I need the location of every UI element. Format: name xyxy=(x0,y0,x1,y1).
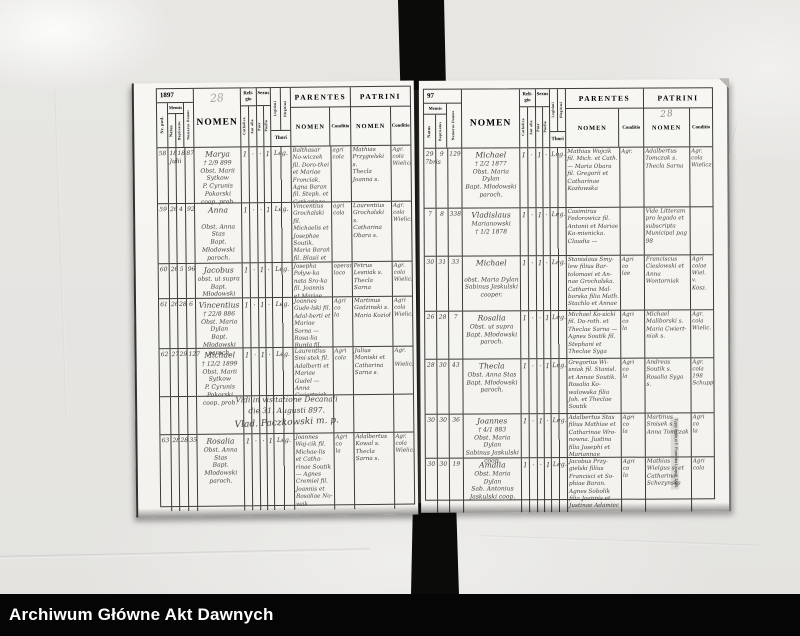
header-thori: Legitimi Illegitimi Thori xyxy=(271,88,292,146)
religio-label: Reli- gio xyxy=(241,88,256,106)
aut-alia-label: Aut alia xyxy=(251,119,255,134)
note-spacer-row xyxy=(160,395,413,436)
cell-thori: Leg. xyxy=(552,458,568,512)
puella-label: Puella xyxy=(544,121,548,132)
patrini-conditio-label: Conditio xyxy=(391,107,410,145)
cell-par-nomen: Casimirus Fedorowicz fil. Antonii et Mar… xyxy=(567,208,621,255)
cell-par-nomen: Adalbertus Stas filius Mathiae et Cathar… xyxy=(568,414,622,457)
cell-nr: 58 xyxy=(157,148,169,203)
header-numerus-domus: Numerus Domus xyxy=(184,103,193,147)
legitimi-label: Legitimi xyxy=(273,101,277,116)
header-natus: Natus xyxy=(168,114,177,147)
cell-par-cond: Agr. xyxy=(620,148,644,207)
cell-cath: 1 xyxy=(522,414,530,457)
cell-nomen: Marya † 2/9 899 Obst. Marii Sytkow P. Cy… xyxy=(194,147,242,202)
nomen-label: NOMEN xyxy=(196,117,238,127)
cell-par-nomen: Stanislaus Smy-lew filius Bar-tolomaei e… xyxy=(567,256,621,310)
left-table-header: 1897 Nr. potł. Mensis Natus Baptisatus N… xyxy=(157,87,411,149)
cell-pat-cond: Agri co la xyxy=(692,413,714,456)
register-row: 78338Vladislaus Marianowski † 1/2 18781·… xyxy=(425,207,713,257)
header-thori: Legitimi Illegitimi Thori xyxy=(550,89,566,147)
cell-par-cond: agri cola xyxy=(331,146,352,201)
cell-par-nomen: Joannes Woj-cik fil. Michae-lis et Catha… xyxy=(294,433,335,509)
register-row: 6026596Jacobus obst. ut supra Bapt. Młod… xyxy=(159,262,412,300)
cell-nomen: Thecla Obst. Anna Stas Bapt. Młodowski p… xyxy=(463,359,521,413)
cell-natus: 7 xyxy=(425,209,437,256)
cell-par-nomen: Josepha Poływ-ka nata Sro-ka fil. Joanni… xyxy=(293,262,333,296)
cell-pat-cond: Agr. cola Wielicz. xyxy=(392,202,412,261)
cell-pat-nomen: Adalbertus Kowal s. Thecla Sarna s. xyxy=(354,433,395,509)
patrini-label: PATRINI xyxy=(351,87,410,108)
parentes-nomen-label: NOMEN xyxy=(291,107,331,145)
register-row: 622729127Michael † 12/2 1899 Obst. Marii… xyxy=(160,347,413,398)
cell-bapt: 9 xyxy=(436,149,448,208)
header-sexus: Sexus Puer Puella xyxy=(257,88,272,146)
header-patrini: PATRINI 28 NOMEN Conditio xyxy=(644,88,712,146)
cell-par-cond: Agri co la xyxy=(622,414,646,457)
cell-pat-cond: Agr. cola Wielicz. xyxy=(394,433,414,509)
cell-pat-cond: Agr. cola Wielicka xyxy=(391,146,411,201)
cell-domus: 36 xyxy=(450,415,464,458)
header-legitimi: Legitimi xyxy=(271,88,281,130)
header-group-dates: 1897 Nr. potł. Mensis Natus Baptisatus N… xyxy=(157,89,195,147)
cell-thori: Leg. xyxy=(551,359,567,413)
cell-bapt: 28 xyxy=(437,312,449,359)
cell-pat-nomen: Martinus Smisek s. Anna Tomczak xyxy=(646,413,692,456)
cell-nomen: Michael obst. Maria Dylan Sabinus Jaskul… xyxy=(463,256,521,310)
cell-par-nomen: Laurentius Smi-stek fil. Adalberti et Ma… xyxy=(294,347,334,394)
cell-thori: Leg. xyxy=(552,414,568,457)
mensis-label: Mensis xyxy=(424,104,446,115)
patrini-nomen-label: NOMEN xyxy=(351,107,391,145)
page-corner-fold xyxy=(719,78,729,88)
cell-bapt: 29 xyxy=(179,349,188,396)
register-row: 6126286Vincentius † 22/8 886 Obst. Maria… xyxy=(159,297,413,350)
right-page: 97 Mensis Natus Baptisatus Numerus Domus xyxy=(419,79,731,513)
cell-pat-nomen: Laurentius Grochalski s. Catharina Obara… xyxy=(352,202,393,261)
cell-pat-nomen: Vide Litteram pro legado et subscripta M… xyxy=(645,207,691,254)
cell-pat-cond: Agr. cola 198 Schupp. xyxy=(691,358,713,412)
cell-pat-nomen: Andreas Soutik s. Rosalia Syga s. xyxy=(645,358,691,412)
cell-par-nomen: Vincentius Grochalski fil. Michaelis et … xyxy=(292,202,333,261)
cell-par-nomen: Mathias Wojcik fil. Mich. et Cath. — Mar… xyxy=(566,148,620,207)
cell-domus: 129 xyxy=(448,149,462,208)
book-spine-top xyxy=(397,0,446,90)
cell-aut: · xyxy=(529,359,537,413)
cell-bapt: 5 xyxy=(178,264,187,298)
natus-label: Natus xyxy=(427,125,432,137)
header-patrini: PATRINI NOMEN Conditio xyxy=(351,87,411,146)
cell-thori: Leg. xyxy=(274,348,294,395)
cell-nomen: Vincentius † 22/8 886 Obst. Maria Dylan … xyxy=(196,298,244,347)
sexus-label: Sexus xyxy=(536,89,549,107)
cell-pat-nomen: Adalbertus Tomczak s. Thecla Sarna xyxy=(644,147,690,206)
cell-par-cond: Agri co la xyxy=(333,297,354,346)
cell-aut: · xyxy=(529,208,537,255)
cell-par-nomen xyxy=(294,395,334,432)
thori-label: Thori xyxy=(271,130,290,146)
header-natus: Natus xyxy=(424,115,436,148)
nr-label: Nr. potł. xyxy=(160,116,165,133)
nomen-label: NOMEN xyxy=(470,118,511,128)
header-parentes: PARENTES NOMEN Conditio xyxy=(291,87,352,146)
cell-par-cond: Agri co la xyxy=(621,311,645,358)
cell-pat-nomen: Martinus Gadzinski s. Maria Kozioł xyxy=(353,297,394,346)
parentes-nomen-label: NOMEN xyxy=(566,109,620,147)
header-religio: Reli- gio Catholica Aut alia xyxy=(241,88,258,146)
sexus-label: Sexus xyxy=(257,88,270,106)
cell-cath: 1 xyxy=(522,458,530,512)
header-group-dates: 97 Mensis Natus Baptisatus Numerus Domus xyxy=(424,90,462,148)
cell-pat-nomen: Michael Maliborski s. Maria Cwiert-niak … xyxy=(645,310,691,357)
parentes-conditio-label: Conditio xyxy=(330,107,350,145)
cell-nr xyxy=(160,397,171,434)
cell-thori: Leg. xyxy=(272,203,293,262)
header-mensis: Mensis Natus Baptisatus xyxy=(424,104,448,148)
cell-domus: 19 xyxy=(450,459,464,513)
year-label: 1897 xyxy=(157,89,193,103)
cell-nomen: Anna Obst. Anna Stas Bapt. Młodowski par… xyxy=(195,203,243,262)
cell-natus: 29 7bris xyxy=(424,149,436,208)
header-religio: Reli- gio Catholica Aut alia xyxy=(520,89,536,147)
baptisatus-label: Baptisatus xyxy=(439,122,443,141)
cell-natus: 30 xyxy=(426,415,438,458)
cell-nomen: Rosalia Obst. Anna Stas Bapt. Młodowski … xyxy=(197,434,245,511)
puella-label: Puella xyxy=(265,120,269,131)
cell-aut: · xyxy=(529,311,537,358)
catholica-label: Catholica xyxy=(243,118,247,136)
archive-name: Archiwum Główne Akt Dawnych xyxy=(9,605,274,625)
cell-par-cond: Agri co la xyxy=(334,433,355,509)
cell-par-nomen: Joannes Gude-lski fil. Adal-berti et Mar… xyxy=(293,297,334,346)
cell-nr: 62 xyxy=(160,349,171,396)
cell-nomen: Michael † 2/2 1877 Obst. Maria Dylan Bap… xyxy=(462,148,520,207)
cell-domus xyxy=(188,397,197,434)
patrini-conditio-label: Conditio xyxy=(690,108,712,146)
cell-aut: · xyxy=(530,414,538,457)
parentes-conditio-label: Conditio xyxy=(619,109,643,147)
register-row: 303133Michael obst. Maria Dylan Sabinus … xyxy=(425,255,713,312)
natus-label: Natus xyxy=(169,125,174,137)
cell-nomen xyxy=(197,396,244,433)
header-aut-alia: Aut alia xyxy=(528,107,535,147)
cell-domus: 338 xyxy=(449,209,463,256)
cell-thori xyxy=(274,396,294,433)
book-spine-bottom xyxy=(411,503,459,595)
cell-bapt: 30 xyxy=(438,415,450,458)
header-illegitimi: Illegitimi xyxy=(558,89,565,131)
register-row: 283043Thecla Obst. Anna Stas Bapt. Młodo… xyxy=(425,358,713,415)
cell-bapt: 30 xyxy=(437,360,449,414)
header-nomen: NOMEN xyxy=(462,89,520,147)
cell-nomen: Rosalia Obst. ut supra Bapt. Młodowski p… xyxy=(463,311,521,358)
cell-thori: Leg. xyxy=(551,256,567,310)
cell-pat-nomen: Julius Moniski et Catharina Sarna s. xyxy=(354,347,394,394)
cell-cath: 1 xyxy=(521,311,529,358)
header-catholica: Catholica xyxy=(520,107,528,147)
year-label: 97 xyxy=(424,90,461,104)
cell-domus: 96 xyxy=(187,264,196,298)
cell-pat-nomen: Franciscus Cieslowski et Anna Wontorniak xyxy=(645,255,691,309)
paper-crease xyxy=(480,535,760,547)
catholica-label: Catholica xyxy=(522,119,526,137)
header-sexus: Sexus Puer Puella xyxy=(536,89,550,147)
header-nomen: 28 NOMEN xyxy=(194,88,242,146)
patrini-label: PATRINI xyxy=(644,88,712,108)
cell-par-cond xyxy=(621,208,645,255)
cell-pat-cond: Agri colae Wiel. v. Kosz. xyxy=(691,255,713,309)
scanned-register-photo: 1897 Nr. potł. Mensis Natus Baptisatus N… xyxy=(0,0,800,636)
baptisatus-label: Baptisatus xyxy=(178,121,182,140)
cell-par-cond: operaria loco xyxy=(333,262,353,296)
cell-domus: 33 xyxy=(449,257,463,311)
header-illegitimi: Illegitimi xyxy=(281,88,290,130)
header-baptisatus: Baptisatus xyxy=(176,114,184,147)
cell-cath: 1 xyxy=(521,256,529,310)
header-nr: Nr. potł. xyxy=(157,103,168,147)
right-table-header: 97 Mensis Natus Baptisatus Numerus Domus xyxy=(424,88,712,149)
header-mensis: Mensis Natus Baptisatus xyxy=(168,103,185,147)
mensis-label: Mensis xyxy=(168,103,184,114)
cell-par-cond xyxy=(334,395,354,432)
register-row: 5818 Julii1887Marya † 2/9 899 Obst. Mari… xyxy=(157,146,411,205)
puer-label: Puer xyxy=(537,123,541,132)
cell-pat-cond: Agr. cola Wielic. xyxy=(691,310,713,357)
cell-natus: 30 xyxy=(425,257,437,311)
cell-natus: 30 xyxy=(426,459,438,513)
cell-pat-cond: Agri cola xyxy=(692,457,714,511)
cell-aut: · xyxy=(529,256,537,310)
numerus-domus-label: Numerus Domus xyxy=(187,110,191,140)
cell-bapt: 30 xyxy=(438,459,450,513)
patrini-nomen-header: 28 NOMEN xyxy=(644,108,690,146)
cell-par-nomen: Michael Ko-sicki fil. Do-roth. et Thecla… xyxy=(567,311,621,358)
cell-thori: Leg. xyxy=(273,298,294,347)
cell-pat-nomen: Mathias Wielgus s. et Catharina Schezyns… xyxy=(646,457,692,511)
cell-domus: 7 xyxy=(449,312,463,359)
cell-pat-nomen: Mathias Przygielski s. Thecla Joanna s. xyxy=(351,146,392,201)
legitimi-label: Legitimi xyxy=(552,102,556,117)
cell-par-nomen: Balthasar No-wiczek fil. Doro-thei et Ma… xyxy=(291,146,332,201)
cell-par-cond: Agri co la xyxy=(622,458,646,512)
cell-pat-cond: Agr. Wielicz. xyxy=(394,347,413,394)
thori-label: Thori xyxy=(550,131,565,147)
numerus-domus-label: Numerus Domus xyxy=(452,111,456,141)
cell-bapt: 8 xyxy=(437,209,449,256)
cell-nomen: Amalia Obst. Maria Dylan Sab. Antonius J… xyxy=(464,458,522,512)
cell-pat-cond xyxy=(691,207,713,254)
puer-label: Puer xyxy=(258,122,262,131)
cell-bapt xyxy=(179,397,188,434)
cell-nr: 61 xyxy=(159,299,171,348)
header-legitimi: Legitimi xyxy=(550,89,558,131)
cell-bapt: 31 xyxy=(437,257,449,311)
cell-par-cond: Agri co la xyxy=(621,359,645,413)
archive-name-bar: Archiwum Główne Akt Dawnych xyxy=(0,594,800,636)
header-puella: Puella xyxy=(264,106,270,146)
cell-nr: 60 xyxy=(159,264,170,298)
cell-thori: Leg. xyxy=(550,148,566,207)
cell-thori: Leg. xyxy=(273,263,293,297)
register-row: 29 7bris9129Michael † 2/2 1877 Obst. Mar… xyxy=(424,147,712,209)
parentes-label: PARENTES xyxy=(566,89,643,109)
cell-thori: Leg. xyxy=(274,434,295,510)
cell-domus: 127 xyxy=(188,349,197,396)
cell-par-nomen: Gregorius Wi-sniak fil. Stanisl. et Anna… xyxy=(567,359,621,413)
cell-aut: · xyxy=(530,458,538,512)
cell-nomen: Joannes † 4/1 883 Obst. Maria Dylan Sabi… xyxy=(464,414,522,457)
cell-pat-cond xyxy=(394,395,413,432)
page-number-pencil: 28 xyxy=(659,109,673,120)
cell-nomen: Michael † 12/2 1899 Obst. Marii Sytkow P… xyxy=(197,348,244,395)
religio-label: Reli- gio xyxy=(520,89,535,107)
header-puella: Puella xyxy=(543,107,549,147)
parentes-label: PARENTES xyxy=(291,87,350,108)
cell-pat-nomen: Petrus Lesniak s. Thecla Sarna xyxy=(353,262,393,296)
cell-nomen: Vladislaus Marianowski † 1/2 1878 xyxy=(463,208,521,255)
cell-nomen: Jacobus obst. ut supra Bapt. Młodowski xyxy=(196,263,243,297)
cell-par-nomen: Jacobus Przy-gielski filius Francisci et… xyxy=(568,458,622,512)
cell-par-cond: Agri cola xyxy=(334,347,354,394)
cell-thori: Leg. xyxy=(551,311,567,358)
left-page: 1897 Nr. potł. Mensis Natus Baptisatus N… xyxy=(132,81,419,518)
cell-pat-cond: Agr. cola Wielicz. xyxy=(690,147,712,206)
cell-domus: 43 xyxy=(449,360,463,414)
printer-imprint: Typis Instituti F. Poremba Leopoli 1885. xyxy=(671,417,679,489)
illegitimi-label: Illegitimi xyxy=(560,102,564,118)
paper-crease xyxy=(54,90,68,420)
left-table-body: 5818 Julii1887Marya † 2/9 899 Obst. Mari… xyxy=(157,146,414,512)
header-numerus-domus: Numerus Domus xyxy=(447,104,461,148)
cell-pat-cond: Agr. cola Wielicz. xyxy=(393,262,412,296)
cell-nr: 59 xyxy=(158,204,170,263)
left-register-table: 1897 Nr. potł. Mensis Natus Baptisatus N… xyxy=(156,86,415,508)
page-number-pencil: 28 xyxy=(209,91,224,105)
header-parentes: PARENTES NOMEN Conditio xyxy=(566,89,644,147)
paper-crease xyxy=(0,548,370,559)
cell-thori: Leg. xyxy=(271,147,292,202)
register-row: 63282835Rosalia Obst. Anna Stas Bapt. Mł… xyxy=(160,433,414,512)
cell-thori: Leg. xyxy=(551,208,567,255)
illegitimi-label: Illegitimi xyxy=(284,101,288,117)
cell-par-cond: Agri co lae xyxy=(621,256,645,310)
register-row: 26287Rosalia Obst. ut supra Bapt. Młodow… xyxy=(425,310,713,360)
cell-natus: 28 xyxy=(425,360,437,414)
header-baptisatus: Baptisatus xyxy=(436,115,447,148)
header-aut-alia: Aut alia xyxy=(249,106,256,146)
cell-pat-nomen xyxy=(354,395,394,432)
cell-par-cond: agri cola xyxy=(332,202,353,261)
patrini-nomen-label: NOMEN xyxy=(652,124,681,131)
cell-nr: 63 xyxy=(160,435,172,511)
cell-cath: 1 xyxy=(521,359,529,413)
cell-natus: 26 xyxy=(425,312,437,359)
register-row: 5926492Anna Obst. Anna Stas Bapt. Młodow… xyxy=(158,202,412,265)
cell-pat-cond: Agri cola Wielicz. xyxy=(393,297,413,346)
aut-alia-label: Aut alia xyxy=(530,120,534,135)
cell-cath: 1 xyxy=(521,208,529,255)
